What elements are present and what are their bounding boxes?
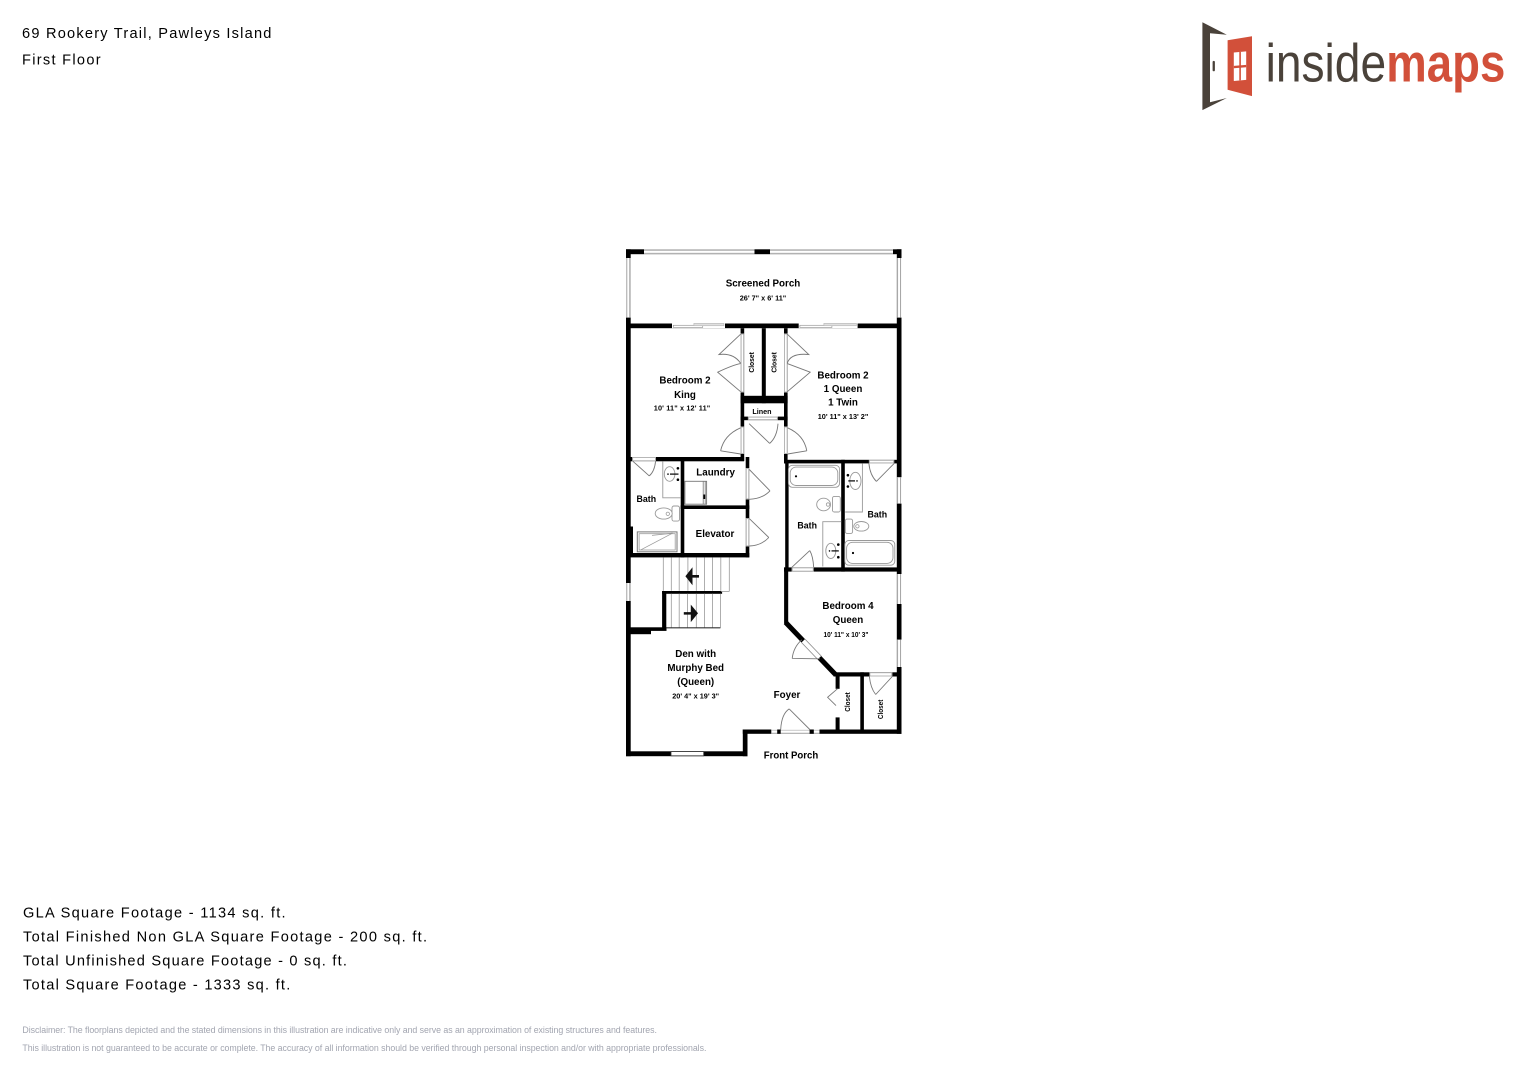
svg-text:Bath: Bath <box>868 509 888 519</box>
svg-text:Elevator: Elevator <box>696 529 735 540</box>
svg-text:1 Twin: 1 Twin <box>828 398 858 409</box>
svg-text:1 Queen: 1 Queen <box>824 384 863 395</box>
svg-text:This illustration is not guara: This illustration is not guaranteed to b… <box>22 1043 706 1053</box>
svg-text:Bath: Bath <box>637 494 657 504</box>
svg-text:Screened Porch: Screened Porch <box>726 279 801 290</box>
svg-text:Total Finished Non GLA Square: Total Finished Non GLA Square Footage - … <box>23 929 427 945</box>
svg-text:inside: inside <box>1266 33 1387 93</box>
svg-text:GLA Square Footage - 1134 sq.: GLA Square Footage - 1134 sq. ft. <box>23 906 286 922</box>
svg-text:Bedroom 4: Bedroom 4 <box>822 601 874 612</box>
svg-text:Total Square Footage - 1333 sq: Total Square Footage - 1333 sq. ft. <box>23 977 290 993</box>
svg-text:Closet: Closet <box>878 699 885 719</box>
svg-text:10' 11" x 12' 11": 10' 11" x 12' 11" <box>654 404 711 413</box>
svg-text:Closet: Closet <box>845 692 852 712</box>
svg-text:10' 11" x 10' 3": 10' 11" x 10' 3" <box>824 630 869 639</box>
svg-text:Closet: Closet <box>771 352 778 373</box>
svg-text:Disclaimer: The floorplans dep: Disclaimer: The floorplans depicted and … <box>22 1025 657 1035</box>
svg-text:Front Porch: Front Porch <box>764 751 819 762</box>
svg-text:Closet: Closet <box>749 352 756 373</box>
svg-text:Den with: Den with <box>675 649 716 660</box>
svg-text:Bedroom 2: Bedroom 2 <box>817 371 869 382</box>
svg-text:10' 11" x 13' 2": 10' 11" x 13' 2" <box>818 412 869 421</box>
svg-text:King: King <box>674 390 696 401</box>
svg-text:Total Unfinished Square Footag: Total Unfinished Square Footage - 0 sq. … <box>23 953 347 969</box>
svg-text:Linen: Linen <box>752 407 771 416</box>
svg-text:Queen: Queen <box>833 615 864 626</box>
svg-text:Murphy Bed: Murphy Bed <box>667 663 724 674</box>
svg-text:20' 4" x 19' 3": 20' 4" x 19' 3" <box>672 691 719 700</box>
svg-text:Foyer: Foyer <box>774 690 801 701</box>
svg-text:(Queen): (Queen) <box>677 677 714 688</box>
svg-text:Bedroom 2: Bedroom 2 <box>659 376 711 387</box>
svg-text:First Floor: First Floor <box>22 53 101 69</box>
svg-text:maps: maps <box>1386 33 1505 93</box>
svg-text:26' 7" x 6' 11": 26' 7" x 6' 11" <box>740 294 787 303</box>
svg-text:Laundry: Laundry <box>696 468 735 479</box>
svg-text:Bath: Bath <box>797 520 817 530</box>
